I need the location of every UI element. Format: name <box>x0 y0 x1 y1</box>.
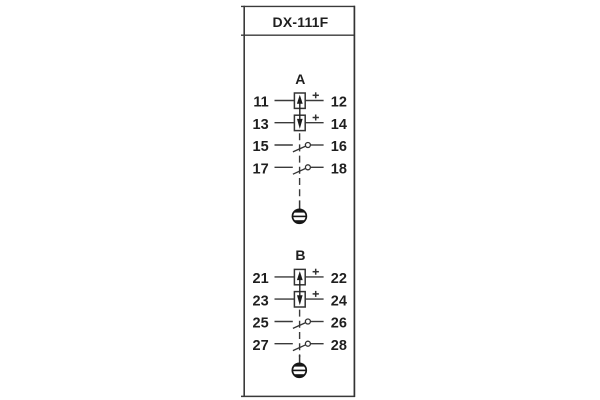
svg-text:26: 26 <box>331 316 347 332</box>
svg-text:24: 24 <box>331 293 347 309</box>
svg-text:18: 18 <box>331 161 347 177</box>
svg-text:A: A <box>295 71 305 87</box>
svg-text:11: 11 <box>253 95 268 111</box>
svg-text:23: 23 <box>253 293 269 309</box>
svg-text:14: 14 <box>331 117 347 133</box>
svg-text:21: 21 <box>253 271 269 287</box>
svg-text:27: 27 <box>253 338 269 354</box>
svg-text:15: 15 <box>253 139 269 155</box>
svg-text:28: 28 <box>331 338 347 354</box>
svg-text:B: B <box>295 247 305 263</box>
svg-text:16: 16 <box>331 139 347 155</box>
svg-text:12: 12 <box>331 95 347 111</box>
svg-text:DX-111F: DX-111F <box>273 14 329 30</box>
svg-text:17: 17 <box>253 161 269 177</box>
svg-text:13: 13 <box>253 117 269 133</box>
svg-text:25: 25 <box>253 316 269 332</box>
svg-text:22: 22 <box>331 271 347 287</box>
